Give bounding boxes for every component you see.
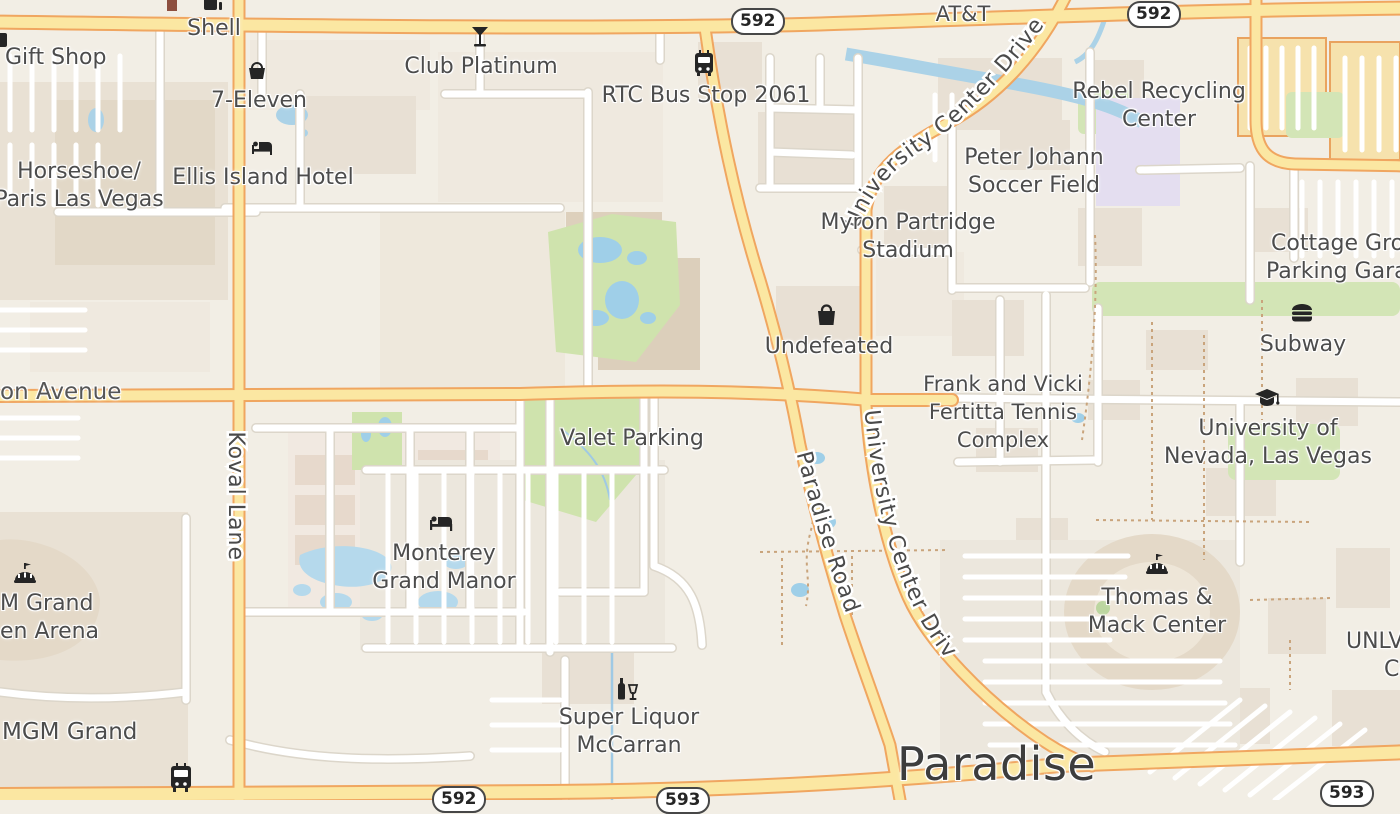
poi-label-club-platinum[interactable]: Club Platinum	[404, 53, 557, 81]
route-badge-593-bottom-right: 593	[1320, 780, 1374, 807]
poi-label-thomas-mack[interactable]: Thomas & Mack Center	[1088, 584, 1226, 640]
poi-label-rebel-recycling[interactable]: Rebel Recycling Center	[1072, 78, 1246, 134]
clipped-poi-marker	[167, 0, 177, 11]
poi-label-unlv[interactable]: University of Nevada, Las Vegas	[1164, 415, 1372, 471]
road-label-koval-lane: Koval Lane	[223, 431, 248, 561]
poi-label-fertitta-tennis[interactable]: Frank and Vicki Fertitta Tennis Complex	[923, 370, 1083, 454]
route-badge-592-top: 592	[731, 8, 785, 35]
map-canvas[interactable]: University Center Drive University Cente…	[0, 0, 1400, 800]
road-label-harmon-avenue: on Avenue	[0, 378, 121, 406]
poi-label-gift-shop[interactable]: Gift Shop	[5, 44, 106, 72]
route-badge-593-bottom: 593	[656, 787, 710, 814]
poi-label-shell[interactable]: Shell	[187, 15, 241, 43]
poi-label-att[interactable]: AT&T	[936, 0, 991, 28]
city-label-paradise: Paradise	[897, 750, 1096, 778]
poi-label-horseshoe-paris[interactable]: Horseshoe/ Paris Las Vegas	[0, 158, 164, 214]
poi-label-valet-parking[interactable]: Valet Parking	[560, 425, 704, 453]
poi-label-seven-eleven[interactable]: 7-Eleven	[211, 87, 307, 115]
poi-label-cottage-grove[interactable]: Cottage Grove Parking Garage	[1271, 230, 1400, 286]
poi-label-undefeated[interactable]: Undefeated	[765, 333, 893, 361]
poi-label-super-liquor[interactable]: Super Liquor McCarran	[559, 704, 699, 760]
route-badge-592-top-right: 592	[1127, 1, 1181, 28]
poi-label-myron-partridge[interactable]: Myron Partridge Stadium	[820, 209, 995, 265]
poi-label-mgm-grand[interactable]: MGM Grand	[2, 718, 137, 746]
poi-label-mgm-garden-arena[interactable]: M Grand en Arena	[0, 590, 99, 646]
poi-label-unlv-ce[interactable]: UNLV Ce	[1346, 628, 1400, 684]
poi-label-monterey-grand-manor[interactable]: Monterey Grand Manor	[372, 540, 515, 596]
poi-label-ellis-island-hotel[interactable]: Ellis Island Hotel	[172, 164, 353, 192]
poi-label-peter-johann[interactable]: Peter Johann Soccer Field	[964, 144, 1103, 200]
poi-label-rtc-bus-stop[interactable]: RTC Bus Stop 2061	[602, 82, 811, 110]
poi-label-subway[interactable]: Subway	[1260, 331, 1346, 359]
